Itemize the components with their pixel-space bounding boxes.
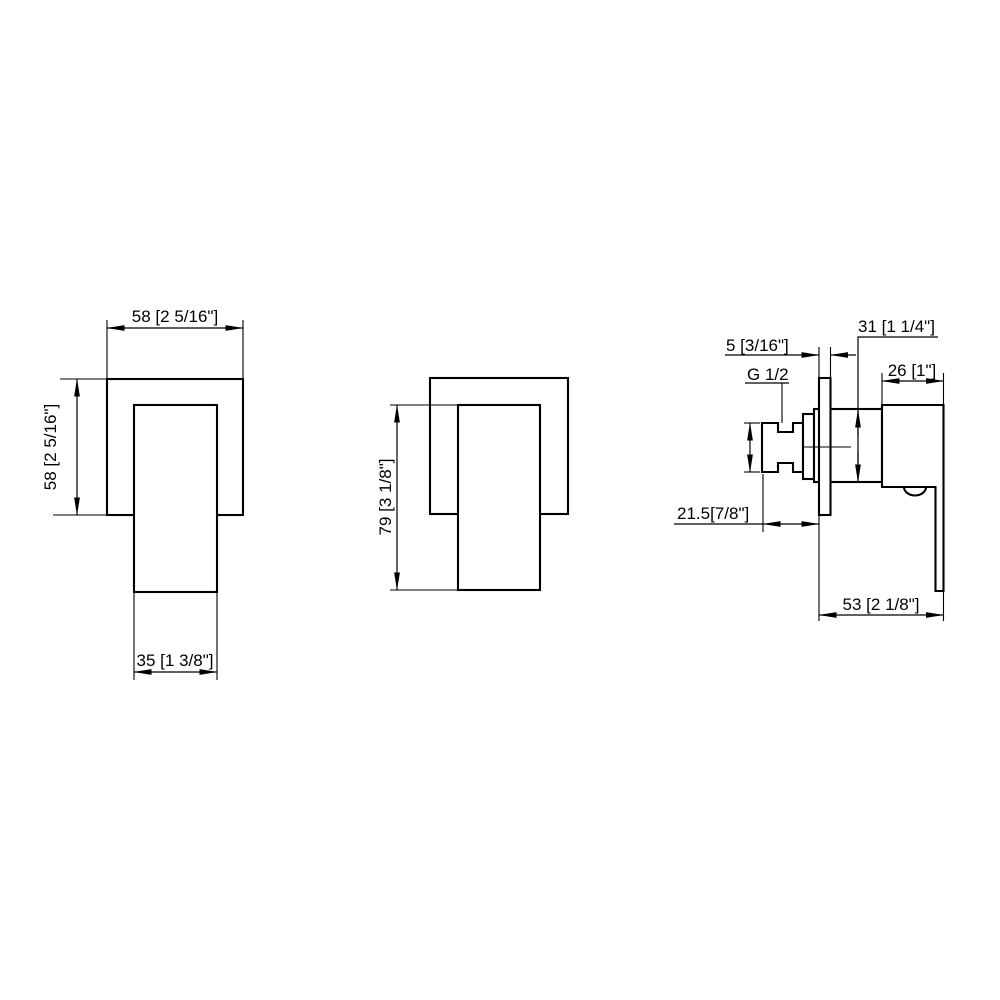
dim-label-handle-height: 79 [3 1/8"] — [376, 459, 395, 536]
handle-front — [134, 405, 217, 592]
front-view: 58 [2 5/16"] 58 [2 5/16"] 35 [1 3/8"] — [41, 307, 243, 680]
handle-front2 — [458, 405, 540, 590]
technical-drawing-page: 58 [2 5/16"] 58 [2 5/16"] 35 [1 3/8"] — [0, 0, 1000, 1000]
screw-dome — [904, 487, 926, 496]
mixer-valve-dimension-drawing: 58 [2 5/16"] 58 [2 5/16"] 35 [1 3/8"] — [0, 0, 1000, 1000]
side-view: 5 [3/16"] G 1/2 31 [1 1/4"] 26 [1"] — [674, 317, 944, 621]
front-view-secondary: 79 [3 1/8"] — [376, 378, 568, 590]
dim-label-overall-depth: 53 [2 1/8"] — [843, 595, 920, 614]
dim-label-handle-width: 35 [1 3/8"] — [137, 651, 214, 670]
dim-label-plate-height: 58 [2 5/16"] — [41, 404, 60, 490]
dim-plate-width: 58 [2 5/16"] — [107, 307, 243, 379]
dim-label-plate-thickness: 5 [3/16"] — [726, 336, 789, 355]
dim-overall-depth: 53 [2 1/8"] — [819, 515, 944, 621]
dim-handle-base-depth: 26 [1"] — [882, 361, 944, 404]
thread-size-label: G 1/2 — [747, 365, 789, 384]
dim-label-plate-width: 58 [2 5/16"] — [132, 307, 218, 326]
dim-label-body-height: 31 [1 1/4"] — [858, 317, 935, 336]
dim-plate-thickness: 5 [3/16"] — [725, 336, 856, 378]
dim-handle-width: 35 [1 3/8"] — [134, 592, 217, 680]
handle-side — [882, 405, 944, 591]
dim-label-inlet-to-wall: 21.5[7/8"] — [677, 504, 749, 523]
dim-inlet-to-wall: 21.5[7/8"] — [674, 474, 819, 532]
inlet-connector — [762, 423, 803, 472]
dim-label-handle-base-depth: 26 [1"] — [888, 361, 937, 380]
